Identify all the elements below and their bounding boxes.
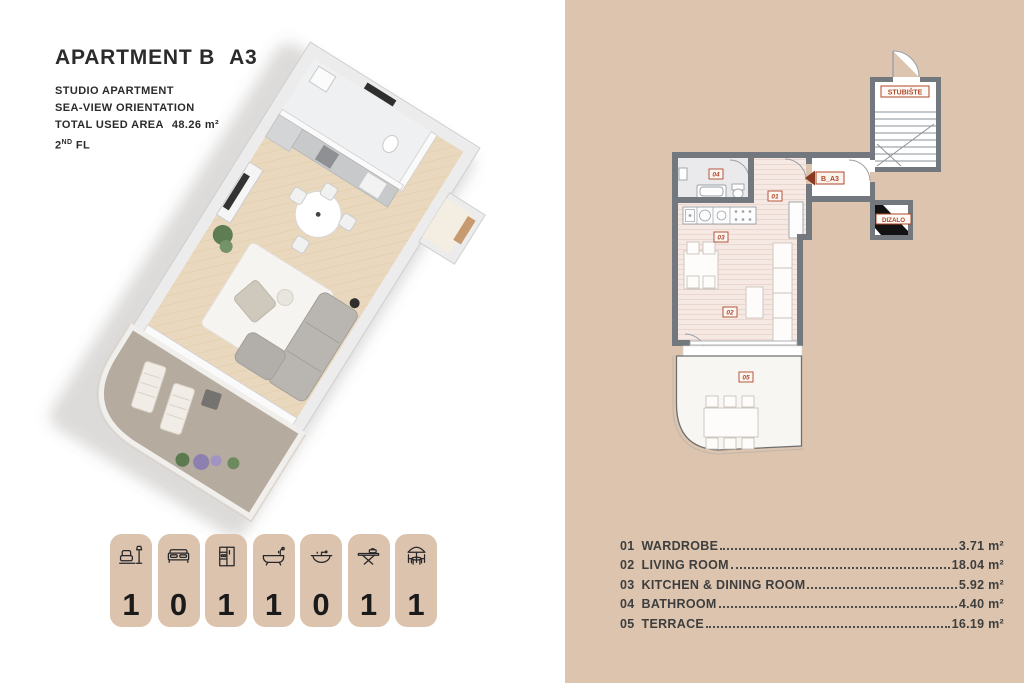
washbasin-icon: [308, 543, 335, 570]
elevator-shaft: DIZALO: [870, 200, 913, 240]
staircase-label: STUBIŠTE: [888, 88, 923, 97]
elevator-label: DIZALO: [882, 217, 905, 224]
room-num: 04: [620, 597, 635, 611]
kitchen-icon: [213, 543, 240, 570]
page-title: APARTMENT BA3: [55, 46, 258, 70]
subtitle-type: STUDIO APARTMENT: [55, 83, 258, 100]
left-panel: APARTMENT BA3 STUDIO APARTMENT SEA-VIEW …: [0, 0, 565, 683]
dotted-leader: [807, 587, 956, 589]
room-name: TERRACE: [642, 617, 705, 631]
unit-entrance-marker: B_A3: [805, 171, 844, 186]
right-panel: STUBIŠTE DIZALO: [565, 0, 1024, 683]
subtitle-orientation: SEA-VIEW ORIENTATION: [55, 100, 258, 117]
title-code: A3: [229, 46, 257, 69]
badge-count: 0: [170, 589, 187, 620]
room-name: WARDROBE: [642, 539, 719, 553]
room-list-item: 02 LIVING ROOM 18.04 m²: [620, 553, 1004, 573]
badge-count: 0: [312, 589, 329, 620]
room-area: 16.19 m²: [952, 617, 1004, 631]
room-area: 18.04 m²: [952, 558, 1004, 572]
area-value: 48.26 m²: [172, 119, 219, 131]
subtitle-floor: 2ND FL: [55, 134, 258, 155]
badge-bathtub: 1: [253, 534, 295, 627]
badge-count: 1: [360, 589, 377, 620]
sofa-lamp-icon: [118, 543, 145, 570]
badge-count: 1: [265, 589, 282, 620]
badge-terrace: 1: [395, 534, 437, 627]
kitchen-counter: [683, 207, 756, 224]
badge-kitchen: 1: [205, 534, 247, 627]
dotted-leader: [719, 606, 957, 608]
room-name: KITCHEN & DINING ROOM: [642, 578, 806, 592]
room-list: 01 WARDROBE 3.71 m² 02 LIVING ROOM 18.04…: [620, 533, 1004, 631]
bathtub-icon: [260, 543, 287, 570]
unit-label: B_A3: [821, 176, 839, 183]
room-num: 01: [620, 539, 635, 553]
dotted-leader: [706, 626, 950, 628]
room-num: 05: [620, 617, 635, 631]
room-label-04: 04: [712, 172, 720, 179]
room-area: 4.40 m²: [959, 597, 1004, 611]
title-block: APARTMENT BA3 STUDIO APARTMENT SEA-VIEW …: [55, 46, 258, 155]
room-list-item: 03 KITCHEN & DINING ROOM 5.92 m²: [620, 572, 1004, 592]
room-label-05: 05: [742, 375, 750, 382]
terrace-sill: [683, 346, 802, 356]
badge-count: 1: [217, 589, 234, 620]
room-label-01: 01: [771, 194, 779, 201]
staircase: STUBIŠTE: [870, 51, 941, 205]
dotted-leader: [731, 567, 950, 569]
wardrobe-closet: [789, 202, 803, 238]
room-list-item: 04 BATHROOM 4.40 m²: [620, 592, 1004, 612]
badge-count: 1: [407, 589, 424, 620]
room-label-02: 02: [726, 310, 734, 317]
badge-washbasin: 0: [300, 534, 342, 627]
amenity-badge-row: 1 0 1: [110, 534, 437, 627]
room-num: 02: [620, 558, 635, 572]
room-list-item: 05 TERRACE 16.19 m²: [620, 611, 1004, 631]
badge-count: 1: [122, 589, 139, 620]
room-area: 5.92 m²: [959, 578, 1004, 592]
room-name: LIVING ROOM: [642, 558, 729, 572]
room-area: 3.71 m²: [959, 539, 1004, 553]
room-num: 03: [620, 578, 635, 592]
title-main: APARTMENT B: [55, 46, 215, 69]
terrace-icon: [403, 543, 430, 570]
dotted-leader: [720, 548, 957, 550]
living-room-window: [690, 341, 797, 345]
bed-icon: [165, 543, 192, 570]
badge-living-room: 1: [110, 534, 152, 627]
ironing-board-icon: [355, 543, 382, 570]
badge-bedroom: 0: [158, 534, 200, 627]
room-list-item: 01 WARDROBE 3.71 m²: [620, 533, 1004, 553]
room-name: BATHROOM: [642, 597, 717, 611]
room-label-03: 03: [717, 235, 725, 242]
brochure-page: APARTMENT BA3 STUDIO APARTMENT SEA-VIEW …: [0, 0, 1024, 683]
badge-ironing: 1: [348, 534, 390, 627]
terrace: [673, 356, 804, 454]
subtitle-area: TOTAL USED AREA48.26 m²: [55, 117, 258, 134]
